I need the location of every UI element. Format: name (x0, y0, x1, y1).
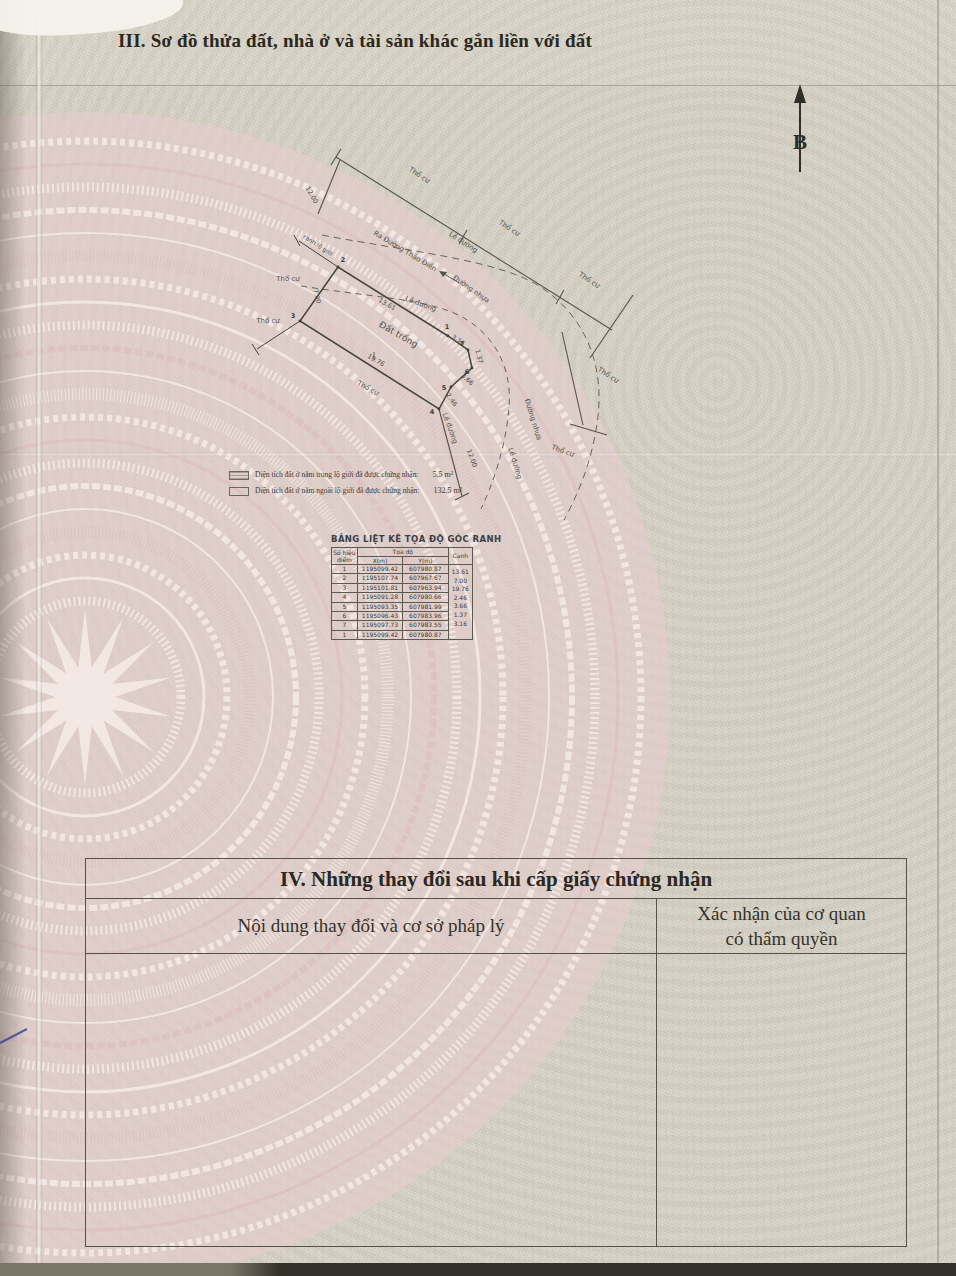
y-cell: 607983.55 (403, 621, 449, 630)
legend-label: Diện tích đất ở nằm trong lộ giới đã đượ… (255, 470, 419, 479)
legend-value: 132.5 m² (433, 486, 462, 495)
edge-length-value: 7.00 (449, 577, 472, 586)
x-cell: 1195099.42 (357, 630, 402, 639)
legend-value: 5.5 m² (433, 470, 454, 479)
area-label: Đường nhựa (523, 398, 543, 441)
legend-swatch-empty (229, 487, 249, 496)
dimension-label: 12.00 (465, 448, 479, 468)
col-header-point: Số hiệu điểm (332, 548, 358, 565)
section4-col-right-header: Xác nhận của cơ quan có thẩm quyền (656, 899, 906, 953)
vertex-number: 3 (291, 312, 296, 320)
vertex-dot (471, 367, 474, 370)
point-cell: 4 (332, 593, 358, 602)
point-cell: 5 (332, 602, 358, 611)
dimension-label: 19.76 (366, 352, 386, 368)
area-label: Lề đường (441, 412, 460, 445)
y-cell: 607980.87 (403, 565, 449, 574)
bottom-scan-edge (0, 1263, 956, 1276)
edge-length-value: 2.46 (449, 594, 472, 603)
coordinate-table-title: BẢNG LIỆT KÊ TỌA ĐỘ GÓC RANH (331, 534, 473, 544)
vertex-dot (337, 266, 340, 269)
y-cell: 607981.99 (403, 602, 449, 611)
vertex-number: 4 (430, 408, 435, 416)
north-label: B (793, 130, 807, 154)
legend-row-outside: Diện tích đất ở nằm ngoài lộ giới đã đượ… (229, 486, 462, 498)
y-cell: 607963.94 (403, 583, 449, 592)
y-cell: 607980.87 (403, 630, 449, 639)
vertex-number: 1 (445, 323, 450, 331)
point-cell: 2 (332, 574, 358, 583)
section-4-table: IV. Những thay đổi sau khi cấp giấy chứn… (85, 858, 907, 1247)
area-label: Đất trống (377, 319, 419, 349)
vertex-number: 7 (460, 340, 465, 348)
dimension-label: 2.46 (444, 392, 459, 408)
col-header-x: X(m) (357, 556, 402, 565)
certificate-page: III. Sơ đồ thửa đất, nhà ở và tài sản kh… (0, 0, 956, 1276)
vertex-dot (450, 386, 453, 389)
vertex-dot (438, 408, 441, 411)
vertex-dot (299, 320, 302, 323)
area-label: Thổ cư (355, 378, 381, 398)
edge-length-value: 13.61 (449, 568, 472, 577)
diagram-area-labels: Thổ cưThổ cưThổ cưThổ cưLề đườngRa Đường… (255, 164, 621, 480)
north-arrow: B (793, 84, 807, 172)
point-cell: 1 (332, 630, 358, 639)
x-cell: 1195099.42 (357, 565, 402, 574)
x-cell: 1195096.43 (357, 612, 402, 621)
road-edge-lines (318, 149, 633, 500)
north-arrow-head (794, 84, 806, 103)
section4-column-divider (656, 953, 657, 1246)
legend-label: Diện tích đất ở nằm ngoài lộ giới đã đượ… (255, 486, 419, 495)
y-cell: 607980.66 (403, 593, 449, 602)
vertex-number: 2 (341, 256, 346, 264)
pen-mark (0, 1029, 27, 1043)
section4-title: IV. Những thay đổi sau khi cấp giấy chứn… (86, 859, 906, 899)
vertex-dot (447, 335, 450, 338)
point-cell: 3 (332, 583, 358, 592)
point-cell: 7 (332, 621, 358, 630)
edge-length-value: 19.76 (449, 585, 472, 594)
section4-header-underline (86, 953, 906, 954)
vertex-number: 6 (465, 368, 470, 376)
area-label: Thổ cư (549, 442, 576, 459)
point-cell: 1 (332, 565, 358, 574)
area-label: Thổ cư (255, 316, 280, 325)
x-cell: 1195093.35 (357, 602, 402, 611)
col-header-y: Y(m) (403, 556, 449, 565)
area-label: Lề đường (404, 295, 437, 314)
col-header-coords: Tọa độ (357, 548, 448, 557)
x-cell: 1195107.74 (357, 574, 402, 583)
legend-swatch-hatched (229, 471, 249, 480)
vertex-dot (467, 349, 470, 352)
x-cell: 1195097.73 (357, 621, 402, 630)
area-label: Lề đường (506, 447, 523, 480)
area-label: Thổ cư (496, 217, 522, 238)
edge-length-value: 3.66 (449, 602, 472, 611)
legend-row-inside: Diện tích đất ở nằm trong lộ giới đã đượ… (229, 470, 453, 482)
col-header-edge: Cạnh (448, 548, 472, 565)
x-cell: 1195091.28 (357, 593, 402, 602)
area-label: Thổ cư (275, 274, 300, 283)
section4-col-left-header: Nội dung thay đổi và cơ sở pháp lý (86, 899, 656, 953)
area-label: Thổ cư (406, 164, 432, 185)
coordinate-table: Số hiệu điểm Tọa độ Cạnh X(m) Y(m) 11195… (331, 547, 473, 640)
area-label: Thổ cư (595, 364, 621, 385)
vertex-number: 5 (442, 384, 447, 392)
edge-length-value: 1.37 (449, 611, 472, 620)
coord-table-row: 11195099.42607980.8713.617.0019.762.463.… (332, 565, 473, 574)
y-cell: 607967.67 (403, 574, 449, 583)
area-label: Ra Đường Thảo Điền (372, 229, 438, 273)
y-cell: 607983.96 (403, 612, 449, 621)
area-label: Thổ cư (576, 269, 602, 290)
dimension-label: 1.37 (473, 348, 484, 364)
edge-length-cell: 13.617.0019.762.463.661.373.16 (448, 565, 472, 640)
area-label: Lề đường (447, 230, 479, 254)
point-cell: 6 (332, 612, 358, 621)
dimension-label: 12.00 (304, 185, 320, 205)
coordinate-table-block: BẢNG LIỆT KÊ TỌA ĐỘ GÓC RANH Số hiệu điể… (331, 534, 473, 640)
vertex-dots (299, 266, 474, 411)
edge-length-value: 3.16 (449, 620, 472, 629)
diagram-vertex-numbers: 1234567 (291, 256, 470, 416)
x-cell: 1195101.81 (357, 583, 402, 592)
area-label: Đường nhựa (451, 274, 491, 305)
